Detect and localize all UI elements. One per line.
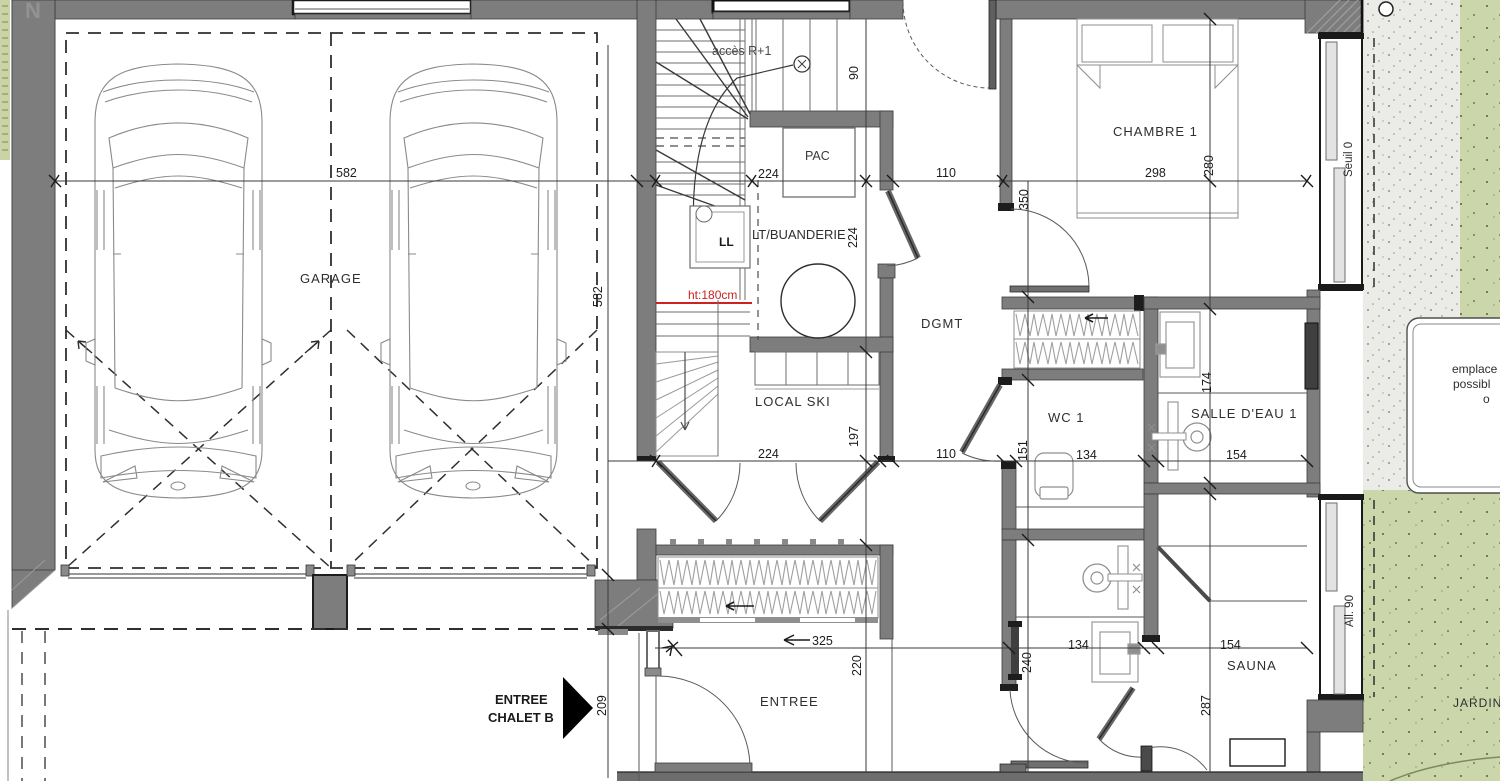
svg-text:N: N — [25, 0, 41, 23]
svg-text:LOCAL SKI: LOCAL SKI — [755, 394, 831, 409]
svg-text:ht:180cm: ht:180cm — [688, 288, 737, 302]
svg-text:GARAGE: GARAGE — [300, 271, 362, 286]
svg-text:o: o — [1483, 392, 1490, 406]
svg-text:224: 224 — [846, 227, 860, 248]
svg-text:LL: LL — [719, 235, 734, 249]
svg-text:224: 224 — [758, 447, 779, 461]
svg-text:ENTREE: ENTREE — [495, 692, 548, 707]
svg-text:SALLE D'EAU 1: SALLE D'EAU 1 — [1191, 406, 1298, 421]
svg-text:CHALET B: CHALET B — [488, 710, 554, 725]
svg-text:298: 298 — [1145, 166, 1166, 180]
svg-text:134: 134 — [1076, 448, 1097, 462]
svg-text:220: 220 — [850, 655, 864, 676]
svg-text:350: 350 — [1017, 189, 1031, 210]
svg-text:90: 90 — [847, 66, 861, 80]
svg-text:209: 209 — [595, 695, 609, 716]
svg-text:280: 280 — [1202, 155, 1216, 176]
svg-text:224: 224 — [758, 167, 779, 181]
svg-text:325: 325 — [812, 634, 833, 648]
svg-text:134: 134 — [1068, 638, 1089, 652]
svg-text:JARDIN: JARDIN — [1453, 696, 1500, 710]
svg-text:582: 582 — [336, 166, 357, 180]
svg-text:WC 1: WC 1 — [1048, 410, 1085, 425]
svg-text:Seuil 0: Seuil 0 — [1343, 142, 1355, 177]
svg-text:174: 174 — [1200, 372, 1214, 393]
svg-text:287: 287 — [1199, 695, 1213, 716]
svg-text:SAUNA: SAUNA — [1227, 658, 1277, 673]
svg-text:DGMT: DGMT — [921, 316, 963, 331]
svg-text:154: 154 — [1220, 638, 1241, 652]
svg-text:CHAMBRE 1: CHAMBRE 1 — [1113, 124, 1198, 139]
svg-text:151: 151 — [1016, 440, 1030, 461]
svg-text:possibl: possibl — [1453, 377, 1490, 391]
svg-text:accès R+1: accès R+1 — [712, 44, 771, 58]
svg-text:582: 582 — [591, 286, 605, 307]
svg-text:110: 110 — [936, 447, 956, 461]
svg-text:All. 90: All. 90 — [1344, 595, 1356, 627]
svg-text:LT/BUANDERIE: LT/BUANDERIE — [752, 227, 846, 242]
svg-text:154: 154 — [1226, 448, 1247, 462]
svg-text:110: 110 — [936, 166, 956, 180]
svg-text:197: 197 — [847, 426, 861, 447]
svg-text:240: 240 — [1020, 652, 1034, 673]
svg-text:PAC: PAC — [805, 149, 830, 163]
svg-text:ENTREE: ENTREE — [760, 694, 819, 709]
svg-text:emplace: emplace — [1452, 362, 1498, 376]
